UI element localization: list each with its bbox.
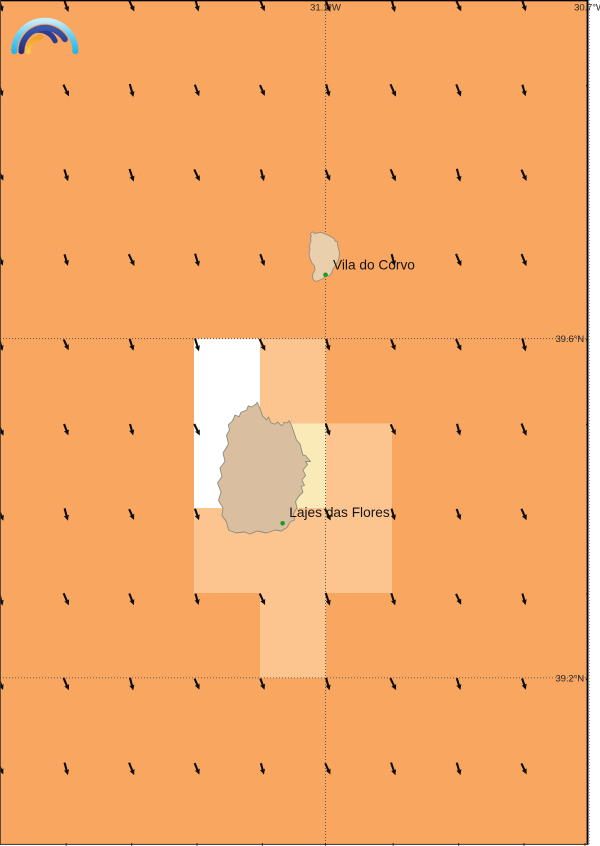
svg-text:39.6°N: 39.6°N [555, 334, 584, 345]
svg-text:Vila do Corvo: Vila do Corvo [333, 257, 415, 272]
svg-text:30.7°W: 30.7°W [574, 2, 600, 13]
svg-text:31.1°W: 31.1°W [310, 2, 342, 13]
svg-text:Lajes das Flores: Lajes das Flores [289, 505, 390, 520]
svg-text:39.2°N: 39.2°N [555, 673, 584, 684]
